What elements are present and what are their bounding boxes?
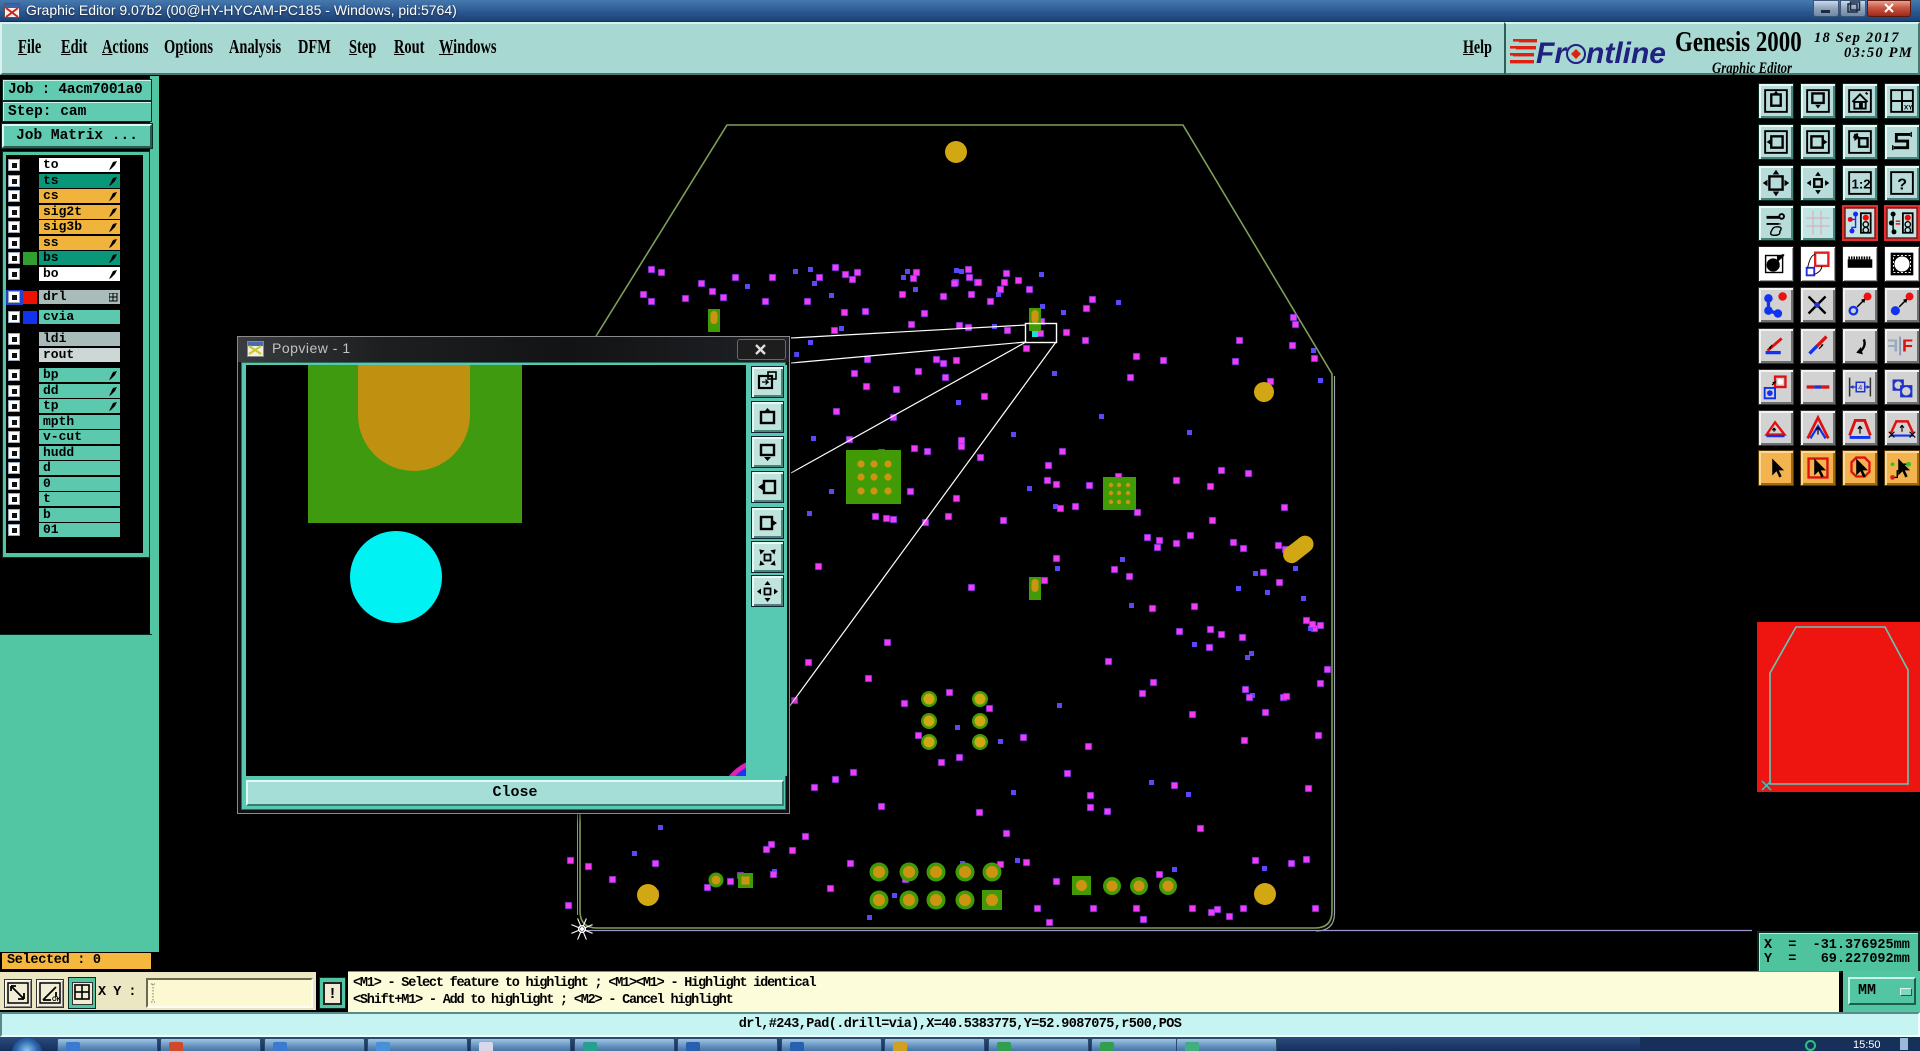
svg-text:F: F xyxy=(1902,336,1913,356)
svg-text:OK: OK xyxy=(52,997,62,1003)
svg-text:1:2: 1:2 xyxy=(1852,177,1871,192)
svg-text:ntline: ntline xyxy=(1586,37,1666,70)
svg-text:F: F xyxy=(1887,336,1898,356)
svg-text:XY: XY xyxy=(1904,105,1913,112)
svg-text:Fr: Fr xyxy=(1536,37,1568,70)
svg-text:?: ? xyxy=(1897,176,1907,194)
svg-text:4: 4 xyxy=(1858,383,1862,392)
